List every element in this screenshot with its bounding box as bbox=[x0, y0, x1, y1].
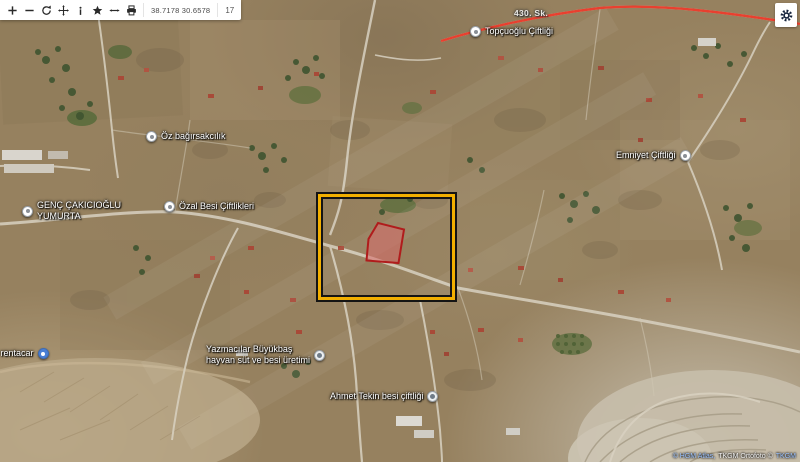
coordinates-display: 38.7178 30.6578 bbox=[143, 3, 217, 17]
poi-label-text: Yazmacılar Büyükbaş bbox=[206, 344, 310, 355]
poi-bagirsakcilik[interactable]: Öz bağırsakcılık bbox=[146, 131, 226, 142]
poi-label-text: Emniyet Çiftliği bbox=[616, 150, 676, 161]
poi-ozal-besi[interactable]: Özal Besi Çiftlikleri bbox=[164, 201, 254, 212]
poi-label-text: Özal Besi Çiftlikleri bbox=[179, 201, 254, 212]
poi-marker-icon bbox=[470, 26, 481, 37]
poi-label-text-line2: hayvan süt ve besi üretimi bbox=[206, 355, 310, 366]
favorites-button[interactable] bbox=[90, 1, 105, 19]
map-application: 430. Sk. Topçuoğlu Çiftliği Öz bağırsakc… bbox=[0, 0, 800, 462]
attribution-text: TKGM Ortofoto © bbox=[718, 453, 773, 460]
poi-label-text: Topçuoğlu Çiftliği bbox=[485, 26, 553, 37]
map-canvas[interactable]: 430. Sk. Topçuoğlu Çiftliği Öz bağırsakc… bbox=[0, 0, 800, 462]
poi-ahmet-tekin[interactable]: Ahmet Tekin besi çiftliği bbox=[330, 391, 438, 402]
poi-label-text: Öz bağırsakcılık bbox=[161, 131, 226, 142]
poi-marker-icon bbox=[680, 150, 691, 161]
poi-rentacar[interactable]: nin rentacar bbox=[0, 348, 49, 359]
road-label: 430. Sk. bbox=[514, 8, 548, 18]
pan-icon bbox=[58, 5, 69, 16]
zoom-level-display: 17 bbox=[217, 3, 241, 17]
printer-icon bbox=[126, 5, 137, 16]
star-icon bbox=[92, 5, 103, 16]
poi-label-text: GENÇ ÇAKICIOĞLU bbox=[37, 200, 121, 211]
gear-icon bbox=[780, 9, 793, 22]
poi-genc-cakicioglu[interactable]: GENÇ ÇAKICIOĞLU YUMURTA bbox=[22, 200, 121, 222]
attribution: © HGM Atlas, TKGM Ortofoto © TKGM bbox=[673, 453, 796, 460]
poi-yazmacilar[interactable]: Yazmacılar Büyükbaş hayvan süt ve besi ü… bbox=[206, 344, 325, 366]
print-button[interactable] bbox=[124, 1, 139, 19]
minus-icon bbox=[24, 5, 35, 16]
info-icon bbox=[75, 5, 86, 16]
pan-button[interactable] bbox=[56, 1, 71, 19]
poi-topcuoglu[interactable]: Topçuoğlu Çiftliği bbox=[470, 26, 553, 37]
poi-marker-icon bbox=[314, 350, 325, 361]
measure-button[interactable] bbox=[107, 1, 122, 19]
zoom-out-button[interactable] bbox=[22, 1, 37, 19]
poi-marker-icon bbox=[427, 391, 438, 402]
info-button[interactable] bbox=[73, 1, 88, 19]
poi-label-text-line2: YUMURTA bbox=[37, 211, 121, 222]
attribution-tkgm-link[interactable]: TKGM bbox=[776, 453, 796, 460]
poi-marker-icon bbox=[22, 206, 33, 217]
zoom-in-button[interactable] bbox=[5, 1, 20, 19]
refresh-button[interactable] bbox=[39, 1, 54, 19]
map-toolbar: 38.7178 30.6578 17 bbox=[0, 0, 241, 20]
settings-button[interactable] bbox=[775, 3, 797, 27]
attribution-hgm-link[interactable]: © HGM Atlas, bbox=[673, 453, 716, 460]
poi-emniyet[interactable]: Emniyet Çiftliği bbox=[616, 150, 691, 161]
plus-icon bbox=[7, 5, 18, 16]
refresh-icon bbox=[41, 5, 52, 16]
poi-marker-icon bbox=[146, 131, 157, 142]
measure-arrow-icon bbox=[109, 5, 120, 16]
poi-label-text: Ahmet Tekin besi çiftliği bbox=[330, 391, 423, 402]
poi-marker-icon bbox=[164, 201, 175, 212]
rentacar-marker-icon bbox=[38, 348, 49, 359]
poi-label-text: nin rentacar bbox=[0, 348, 34, 359]
